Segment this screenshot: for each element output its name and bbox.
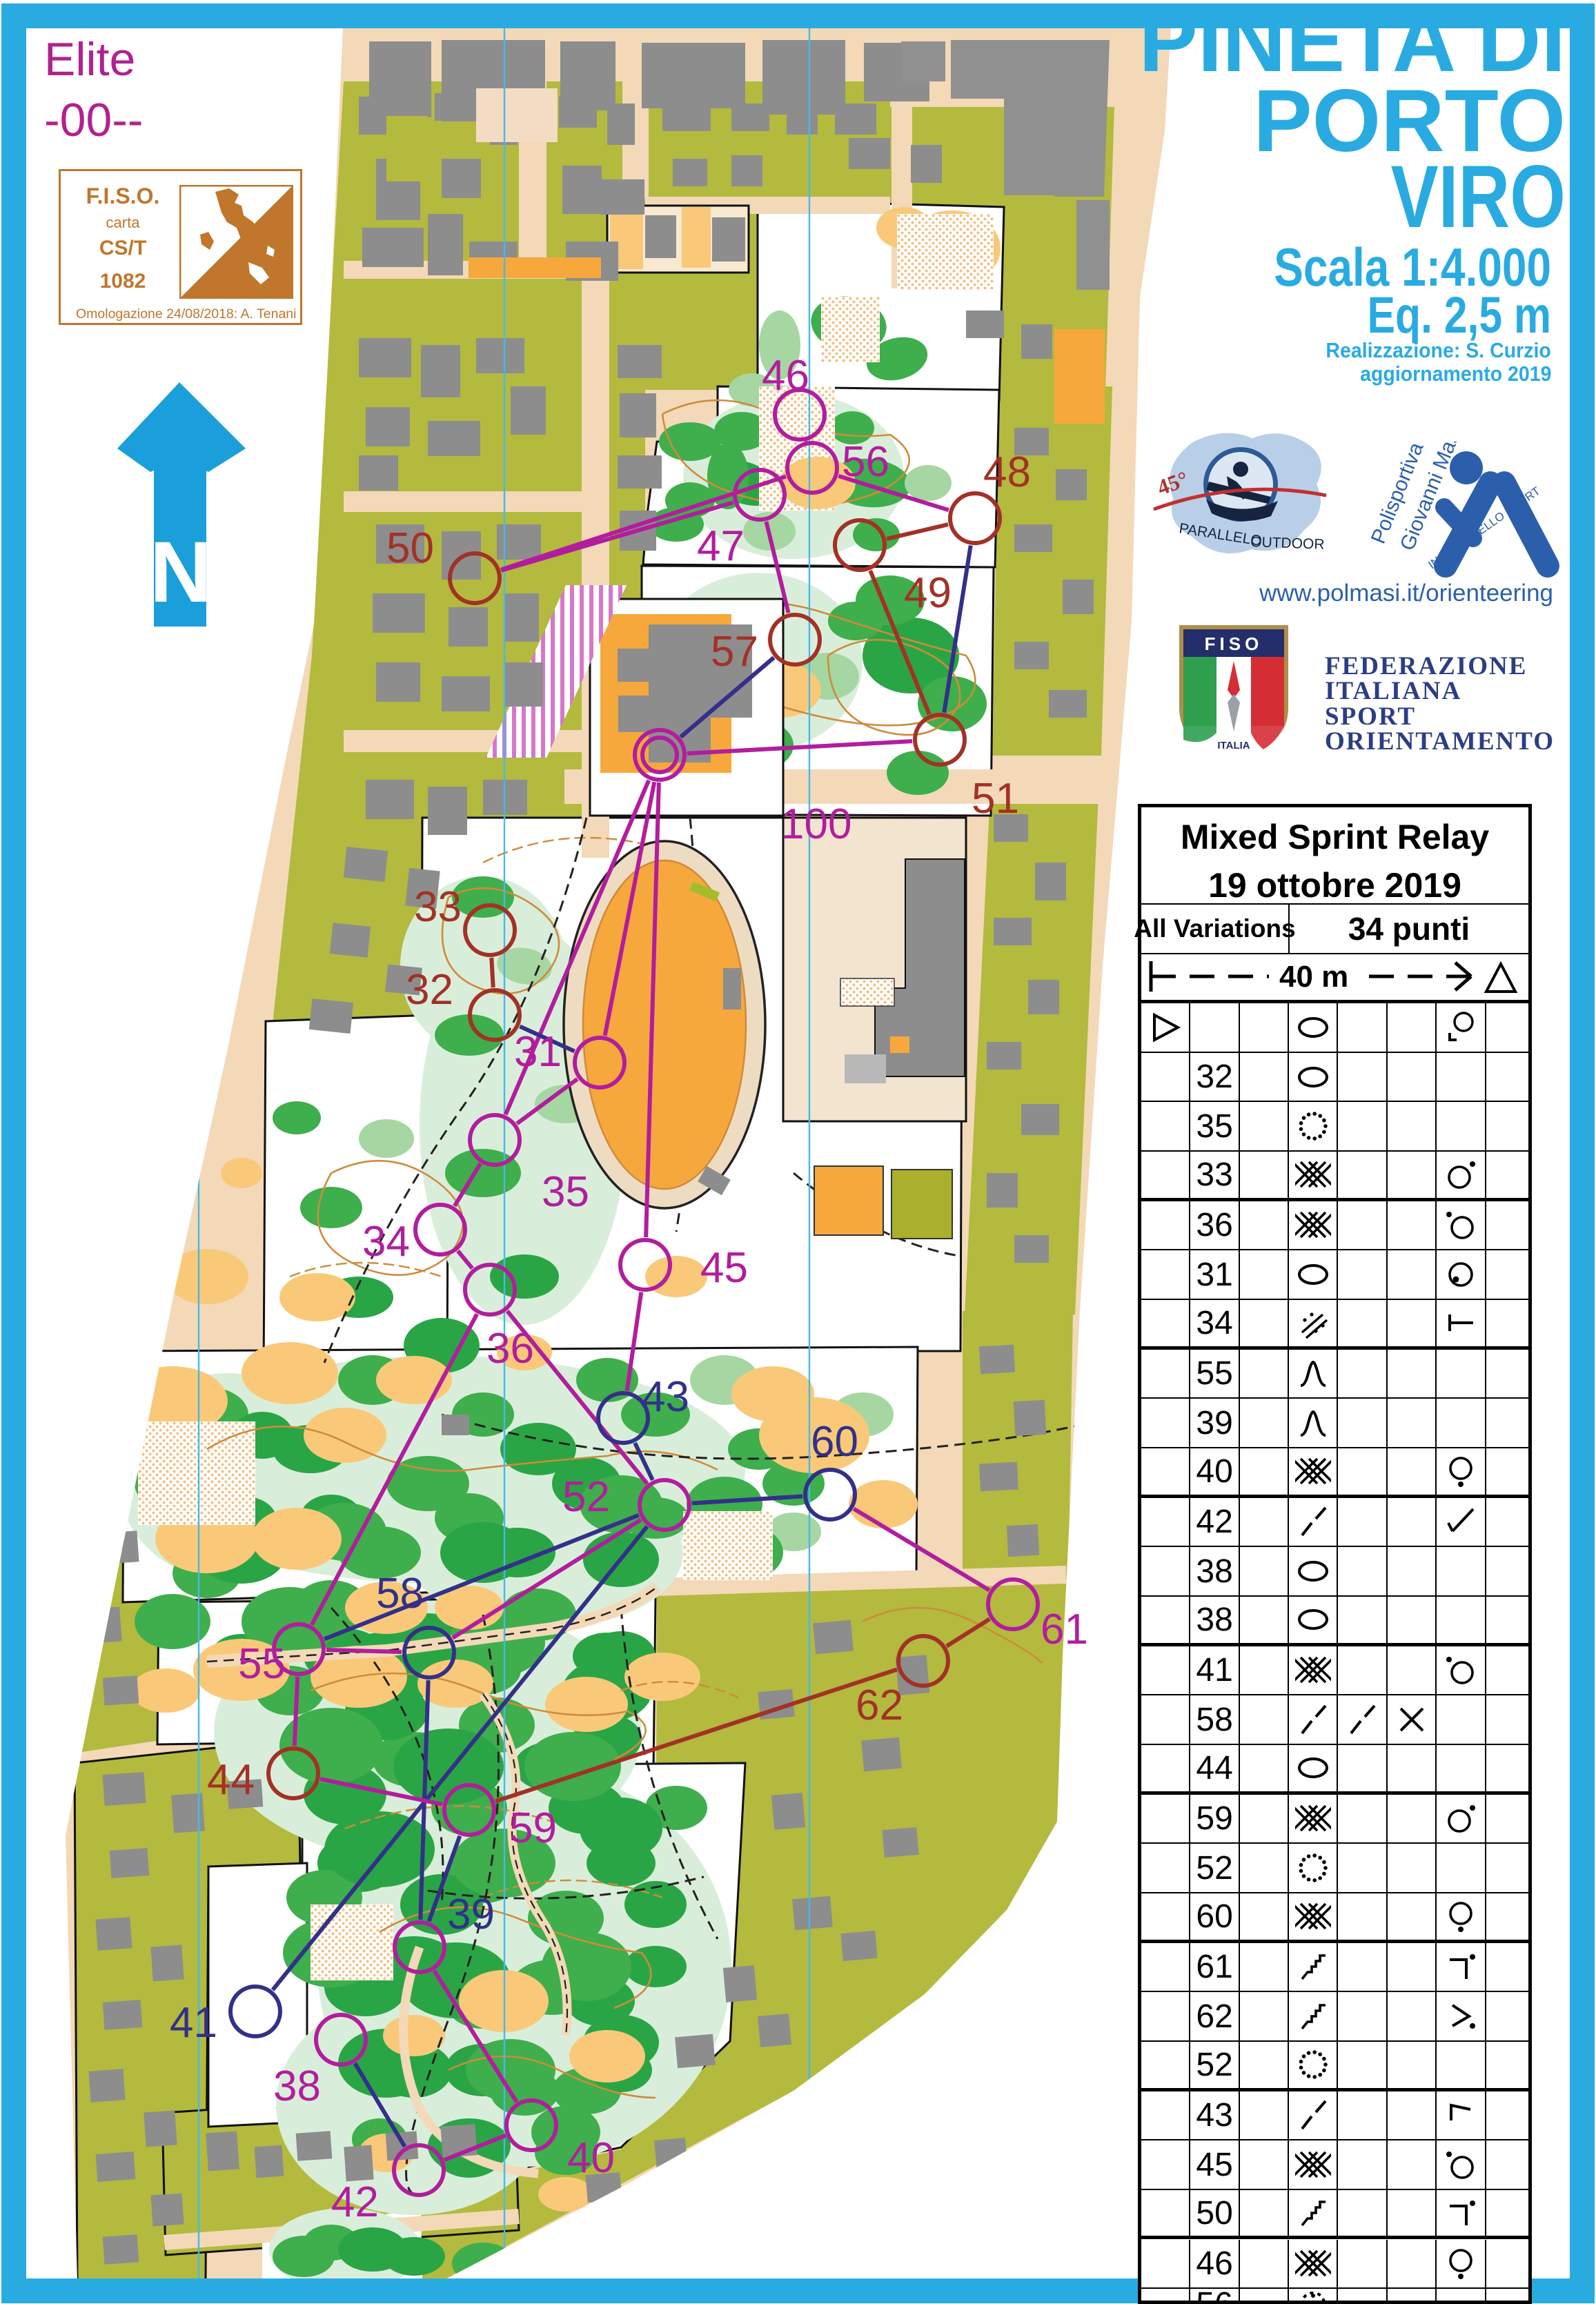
- svg-text:50: 50: [386, 524, 434, 572]
- svg-text:31: 31: [514, 1028, 562, 1076]
- svg-text:100: 100: [780, 800, 851, 848]
- svg-text:61: 61: [1041, 1606, 1088, 1653]
- svg-text:38: 38: [273, 2062, 321, 2110]
- svg-text:51: 51: [972, 775, 1019, 823]
- svg-text:40: 40: [567, 2134, 615, 2182]
- svg-text:56: 56: [842, 438, 889, 486]
- svg-text:48: 48: [983, 449, 1031, 496]
- svg-text:60: 60: [811, 1418, 858, 1466]
- svg-text:35: 35: [542, 1168, 589, 1216]
- svg-text:55: 55: [238, 1640, 286, 1688]
- svg-text:62: 62: [856, 1682, 903, 1729]
- svg-text:32: 32: [406, 966, 453, 1014]
- svg-text:N: N: [150, 524, 212, 620]
- svg-text:36: 36: [486, 1325, 534, 1372]
- svg-text:33: 33: [414, 883, 462, 931]
- svg-text:OUTDOOR: OUTDOOR: [1250, 534, 1325, 553]
- svg-text:52: 52: [562, 1473, 610, 1521]
- svg-text:59: 59: [509, 1804, 557, 1852]
- svg-text:58: 58: [376, 1570, 424, 1617]
- svg-text:44: 44: [207, 1756, 255, 1804]
- svg-text:43: 43: [642, 1373, 689, 1421]
- svg-text:ITALIA: ITALIA: [1217, 740, 1250, 751]
- svg-text:45: 45: [700, 1244, 748, 1292]
- svg-text:41: 41: [170, 1999, 217, 2047]
- svg-text:40 m: 40 m: [1279, 960, 1348, 994]
- svg-text:49: 49: [904, 569, 952, 617]
- svg-text:34: 34: [362, 1218, 410, 1266]
- svg-text:57: 57: [711, 628, 758, 676]
- svg-text:46: 46: [762, 352, 809, 400]
- svg-text:FISO: FISO: [1205, 633, 1263, 654]
- svg-text:47: 47: [697, 522, 745, 570]
- svg-text:42: 42: [331, 2178, 379, 2226]
- svg-text:39: 39: [447, 1891, 495, 1938]
